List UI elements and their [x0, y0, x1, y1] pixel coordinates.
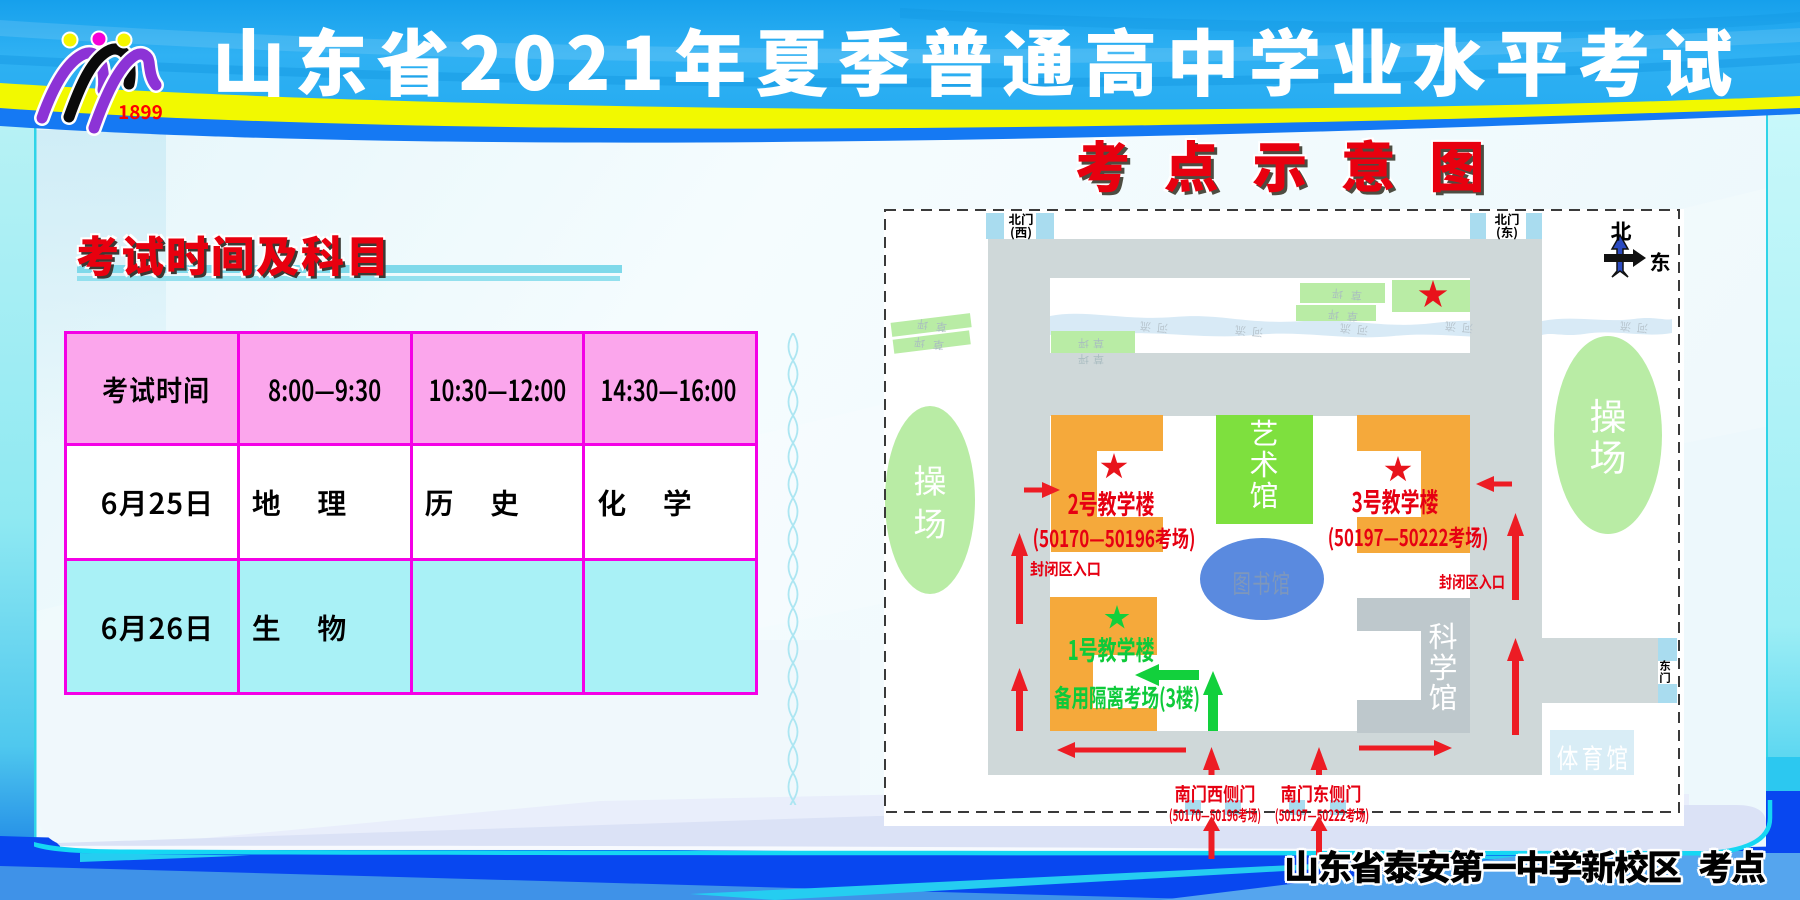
svg-text:1899: 1899: [118, 98, 163, 125]
